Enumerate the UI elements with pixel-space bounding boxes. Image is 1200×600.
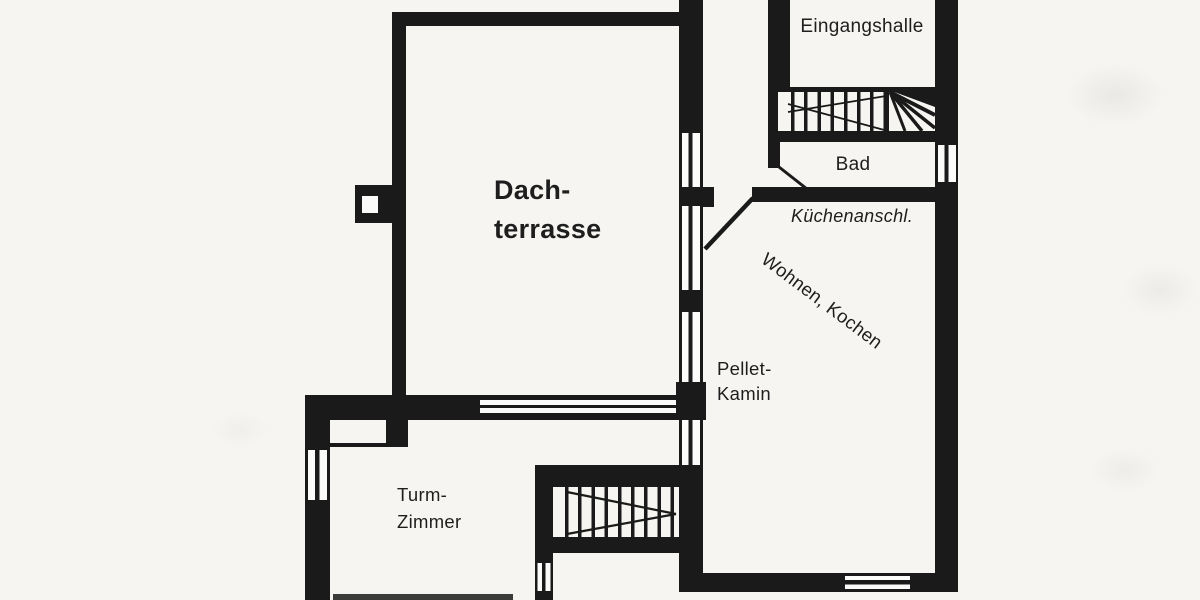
stairs-tower-treads: [565, 487, 682, 537]
stairs-main-treads: [791, 90, 890, 131]
wall-niche-line: [330, 443, 388, 447]
door-jamb-terrace: [703, 187, 714, 207]
wall-terrace-left: [392, 12, 406, 420]
column-post-core: [362, 196, 378, 213]
label-dachterrasse-line2: terrasse: [494, 210, 602, 249]
wall-bad-left: [768, 142, 780, 168]
floor-plan-page: Dach- terrasse Eingangshalle Bad Küchena…: [0, 0, 1200, 600]
wall-eingangshalle-left: [768, 0, 790, 90]
wall-stairs-tower-top: [535, 465, 679, 487]
window-west: [305, 450, 330, 500]
window-east: [935, 145, 958, 183]
label-turmzimmer: Turm- Zimmer: [397, 481, 461, 535]
wall-strip-seg2: [679, 290, 703, 312]
wall-east-lower: [935, 182, 958, 574]
wall-niche: [386, 420, 408, 447]
wall-strip-upper: [679, 0, 703, 135]
wall-terrace-top: [392, 12, 703, 26]
stairs-main-winder-line: [890, 92, 935, 128]
stairs-main-winder-line: [890, 92, 922, 131]
stairs-main-winder-edge: [886, 90, 889, 131]
pellet-stove-block: [676, 382, 706, 420]
stairs-main-winder-line: [890, 92, 935, 115]
label-pellet-kamin-line1: Pellet-: [717, 356, 772, 381]
label-turmzimmer-line1: Turm-: [397, 481, 461, 508]
wall-stairs-main-bottom: [770, 131, 937, 142]
label-dachterrasse-line1: Dach-: [494, 171, 602, 210]
label-turmzimmer-line2: Zimmer: [397, 508, 461, 535]
label-bad: Bad: [836, 154, 871, 176]
room-eingangshalle: [790, 0, 935, 87]
wall-east-upper: [935, 0, 958, 146]
window-strip-3: [679, 312, 703, 382]
label-pellet-kamin-line2: Kamin: [717, 381, 772, 406]
window-terrace-south: [480, 395, 679, 420]
wall-stairs-tower-bottom: [550, 537, 679, 553]
window-strip-4: [679, 420, 703, 465]
wall-stairs-tower-left-foot: [535, 591, 553, 600]
stairs-main-winder-line: [890, 92, 905, 131]
wall-kueche: [752, 187, 958, 202]
window-south: [845, 576, 910, 589]
window-stairs-tower: [535, 563, 553, 592]
label-kuechenanschluss: Küchenanschl.: [791, 206, 913, 227]
window-strip-2: [679, 206, 703, 290]
window-strip-1: [679, 133, 703, 188]
label-pellet-kamin: Pellet- Kamin: [717, 356, 772, 406]
label-dachterrasse: Dach- terrasse: [494, 171, 602, 249]
wall-terrace-south: [305, 395, 480, 420]
wall-bottom-cut: [333, 594, 513, 600]
label-eingangshalle: Eingangshalle: [800, 16, 923, 38]
wall-south: [679, 573, 958, 592]
wall-strip-seg1: [679, 187, 703, 207]
stairs-main-winder-fill: [889, 90, 935, 107]
